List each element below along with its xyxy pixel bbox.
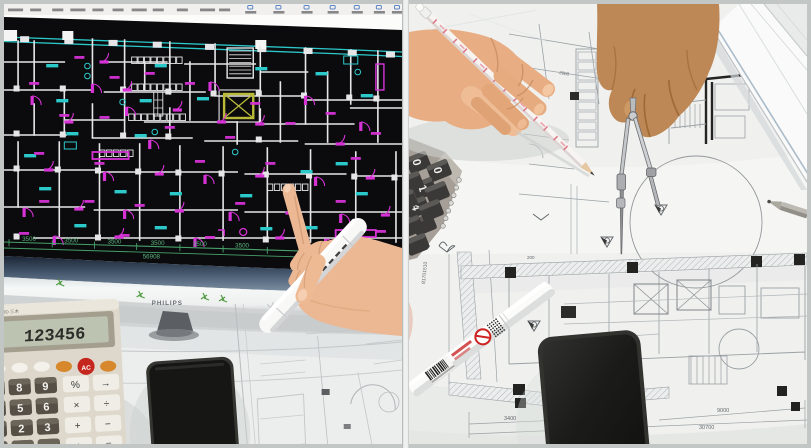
svg-text:6: 6	[43, 401, 50, 413]
svg-text:3500: 3500	[22, 236, 36, 243]
svg-text:123456: 123456	[24, 325, 86, 347]
svg-text:9: 9	[42, 381, 49, 393]
svg-text:3500: 3500	[151, 240, 165, 247]
svg-text:5: 5	[17, 403, 24, 415]
svg-text:3500: 3500	[235, 242, 249, 249]
svg-text:00: 00	[16, 443, 29, 444]
svg-text:·: ·	[46, 442, 50, 444]
svg-text:→: →	[100, 378, 111, 389]
svg-text:8: 8	[16, 382, 23, 394]
svg-text:+: +	[75, 441, 82, 444]
svg-text:3500: 3500	[193, 241, 207, 248]
svg-text:9000: 9000	[717, 408, 729, 414]
svg-text:+: +	[74, 421, 81, 432]
svg-text:PHILIPS: PHILIPS	[152, 300, 183, 307]
svg-text:×: ×	[73, 400, 80, 411]
svg-text:30700: 30700	[699, 425, 714, 431]
svg-text:56908: 56908	[143, 254, 161, 261]
svg-text:3500: 3500	[108, 239, 122, 246]
svg-text:AC: AC	[81, 365, 91, 372]
svg-text:÷: ÷	[104, 399, 111, 410]
svg-text:200: 200	[527, 255, 535, 260]
svg-text:3400: 3400	[504, 416, 516, 422]
svg-text:=: =	[106, 440, 113, 444]
svg-text:−: −	[105, 419, 112, 430]
svg-text:2: 2	[18, 423, 25, 435]
svg-text:3: 3	[44, 422, 51, 434]
svg-text:%: %	[71, 380, 81, 391]
svg-text:3500: 3500	[64, 237, 78, 244]
